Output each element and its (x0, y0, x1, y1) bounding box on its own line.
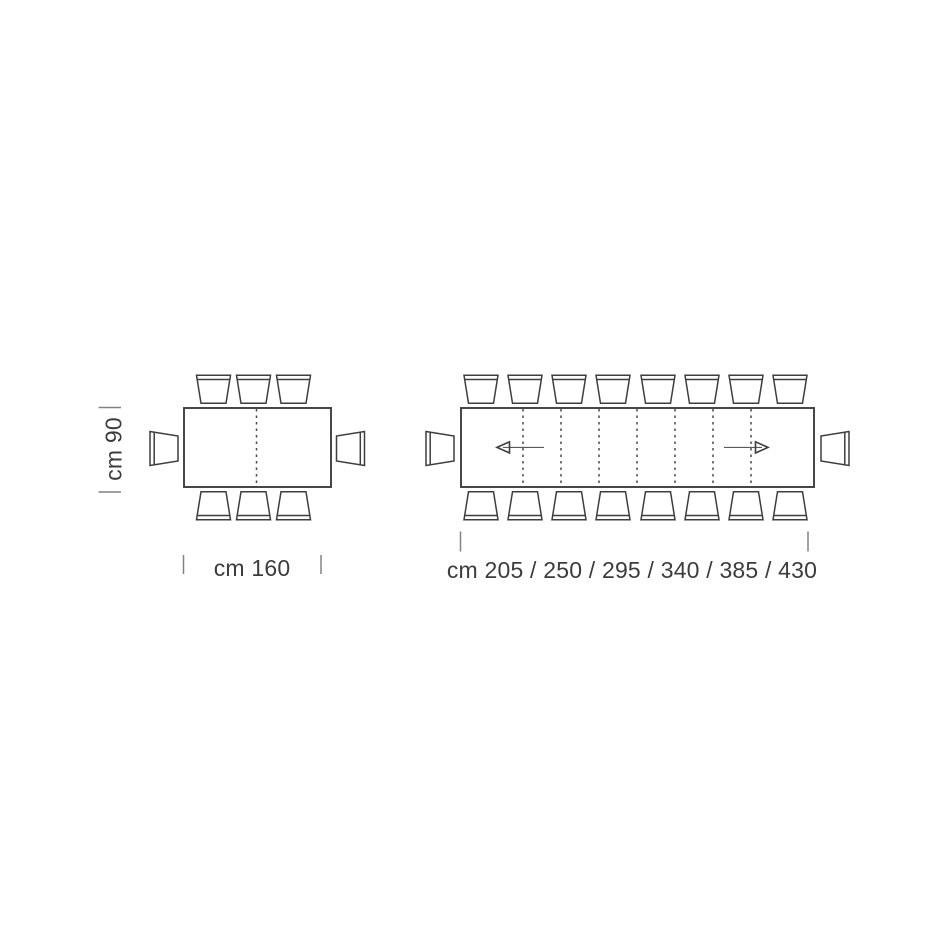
chair (508, 492, 542, 520)
extendable-table-chairs (426, 375, 849, 519)
extension-arrow-right (724, 442, 768, 453)
chair (596, 375, 630, 403)
chair (197, 492, 231, 520)
extendable-table-diagram: cm 205 / 250 / 295 / 340 / 385 / 430 (426, 375, 849, 583)
chair (237, 492, 271, 520)
chair (773, 375, 807, 403)
chair (150, 432, 178, 466)
chair (821, 432, 849, 466)
chair (552, 492, 586, 520)
fixed-table-depth-label: cm 90 (101, 417, 127, 481)
fixed-table-length-label: cm 160 (214, 555, 291, 581)
chair (277, 492, 311, 520)
chair (197, 375, 231, 403)
fixed-table-length-dimension: cm 160 (184, 555, 322, 581)
chair (464, 492, 498, 520)
chair (596, 492, 630, 520)
diagram-svg: cm 90 cm 160 (0, 0, 950, 950)
fixed-table-depth-dimension: cm 90 (99, 408, 127, 493)
chair (552, 375, 586, 403)
chair (641, 375, 675, 403)
extension-arrow-left (497, 442, 544, 453)
extendable-table-length-label: cm 205 / 250 / 295 / 340 / 385 / 430 (447, 557, 817, 583)
chair (729, 492, 763, 520)
fixed-table-top (184, 408, 331, 487)
extendable-table-length-dimension: cm 205 / 250 / 295 / 340 / 385 / 430 (447, 532, 817, 584)
chair (641, 492, 675, 520)
table-dimensions-diagram: cm 90 cm 160 (0, 0, 950, 950)
extension-leaf-lines (523, 409, 751, 487)
chair (464, 375, 498, 403)
chair (337, 432, 365, 466)
chair (773, 492, 807, 520)
chair (426, 432, 454, 466)
chair (729, 375, 763, 403)
chair (508, 375, 542, 403)
fixed-table-diagram: cm 90 cm 160 (99, 375, 365, 581)
fixed-table-chairs (150, 375, 365, 519)
chair (277, 375, 311, 403)
chair (237, 375, 271, 403)
chair (685, 375, 719, 403)
chair (685, 492, 719, 520)
